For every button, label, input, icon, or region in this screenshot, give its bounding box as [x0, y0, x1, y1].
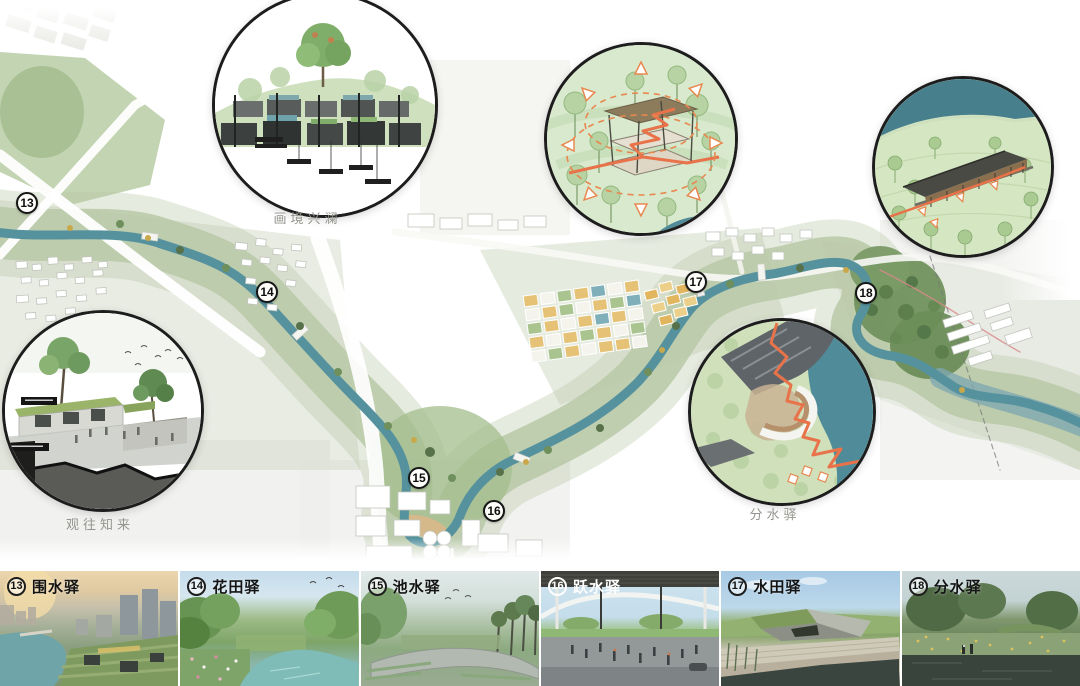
map-marker-14: 14 [256, 281, 278, 303]
callout-garden-section [212, 0, 438, 218]
gallery-item-yueshui: 16 跃水驿 [541, 571, 719, 686]
gallery-name: 跃水驿 [573, 576, 621, 597]
gallery-name: 池水驿 [393, 576, 441, 597]
gallery-label: 17 水田驿 [728, 576, 801, 597]
map-marker-16: 16 [483, 500, 505, 522]
gallery-item-chishui: 15 池水驿 [361, 571, 539, 686]
gallery-number-badge: 13 [7, 577, 26, 596]
caption-heritage-view: 观往知来 [35, 514, 165, 533]
gallery-item-shuitian: 17 水田驿 [721, 571, 899, 686]
gallery-label: 14 花田驿 [187, 576, 260, 597]
caption-fenshui-station: 分水驿 [715, 504, 835, 523]
station-gallery: 13 围水驿 14 花田驿 [0, 571, 1080, 686]
callout-heritage-view [2, 310, 204, 512]
gallery-label: 16 跃水驿 [548, 576, 621, 597]
gallery-name: 花田驿 [212, 576, 260, 597]
map-marker-17: 17 [685, 271, 707, 293]
gallery-name: 分水驿 [934, 576, 982, 597]
gallery-label: 13 围水驿 [7, 576, 80, 597]
gallery-number-badge: 14 [187, 577, 206, 596]
map-marker-15: 15 [408, 467, 430, 489]
caption-garden-section: 画境兴澜 [240, 208, 375, 227]
gallery-number-badge: 16 [548, 577, 567, 596]
gallery-number-badge: 15 [368, 577, 387, 596]
gallery-item-fenshui: 18 分水驿 [902, 571, 1080, 686]
gallery-name: 水田驿 [753, 576, 801, 597]
gallery-item-huatian: 14 花田驿 [180, 571, 358, 686]
gallery-label: 15 池水驿 [368, 576, 441, 597]
callout-fenshui-plan [688, 318, 876, 506]
gallery-number-badge: 17 [728, 577, 747, 596]
gallery-label: 18 分水驿 [909, 576, 982, 597]
callout-tower-diagram [544, 42, 738, 236]
masterplan-board: 画境兴澜 观往知来 分水驿 13 14 15 16 17 18 13 围水驿 [0, 0, 1080, 686]
gallery-name: 围水驿 [32, 576, 80, 597]
map-marker-18: 18 [855, 282, 877, 304]
gallery-item-weishui: 13 围水驿 [0, 571, 178, 686]
callout-pavilion-diagram [872, 76, 1054, 258]
map-marker-13: 13 [16, 192, 38, 214]
gallery-number-badge: 18 [909, 577, 928, 596]
